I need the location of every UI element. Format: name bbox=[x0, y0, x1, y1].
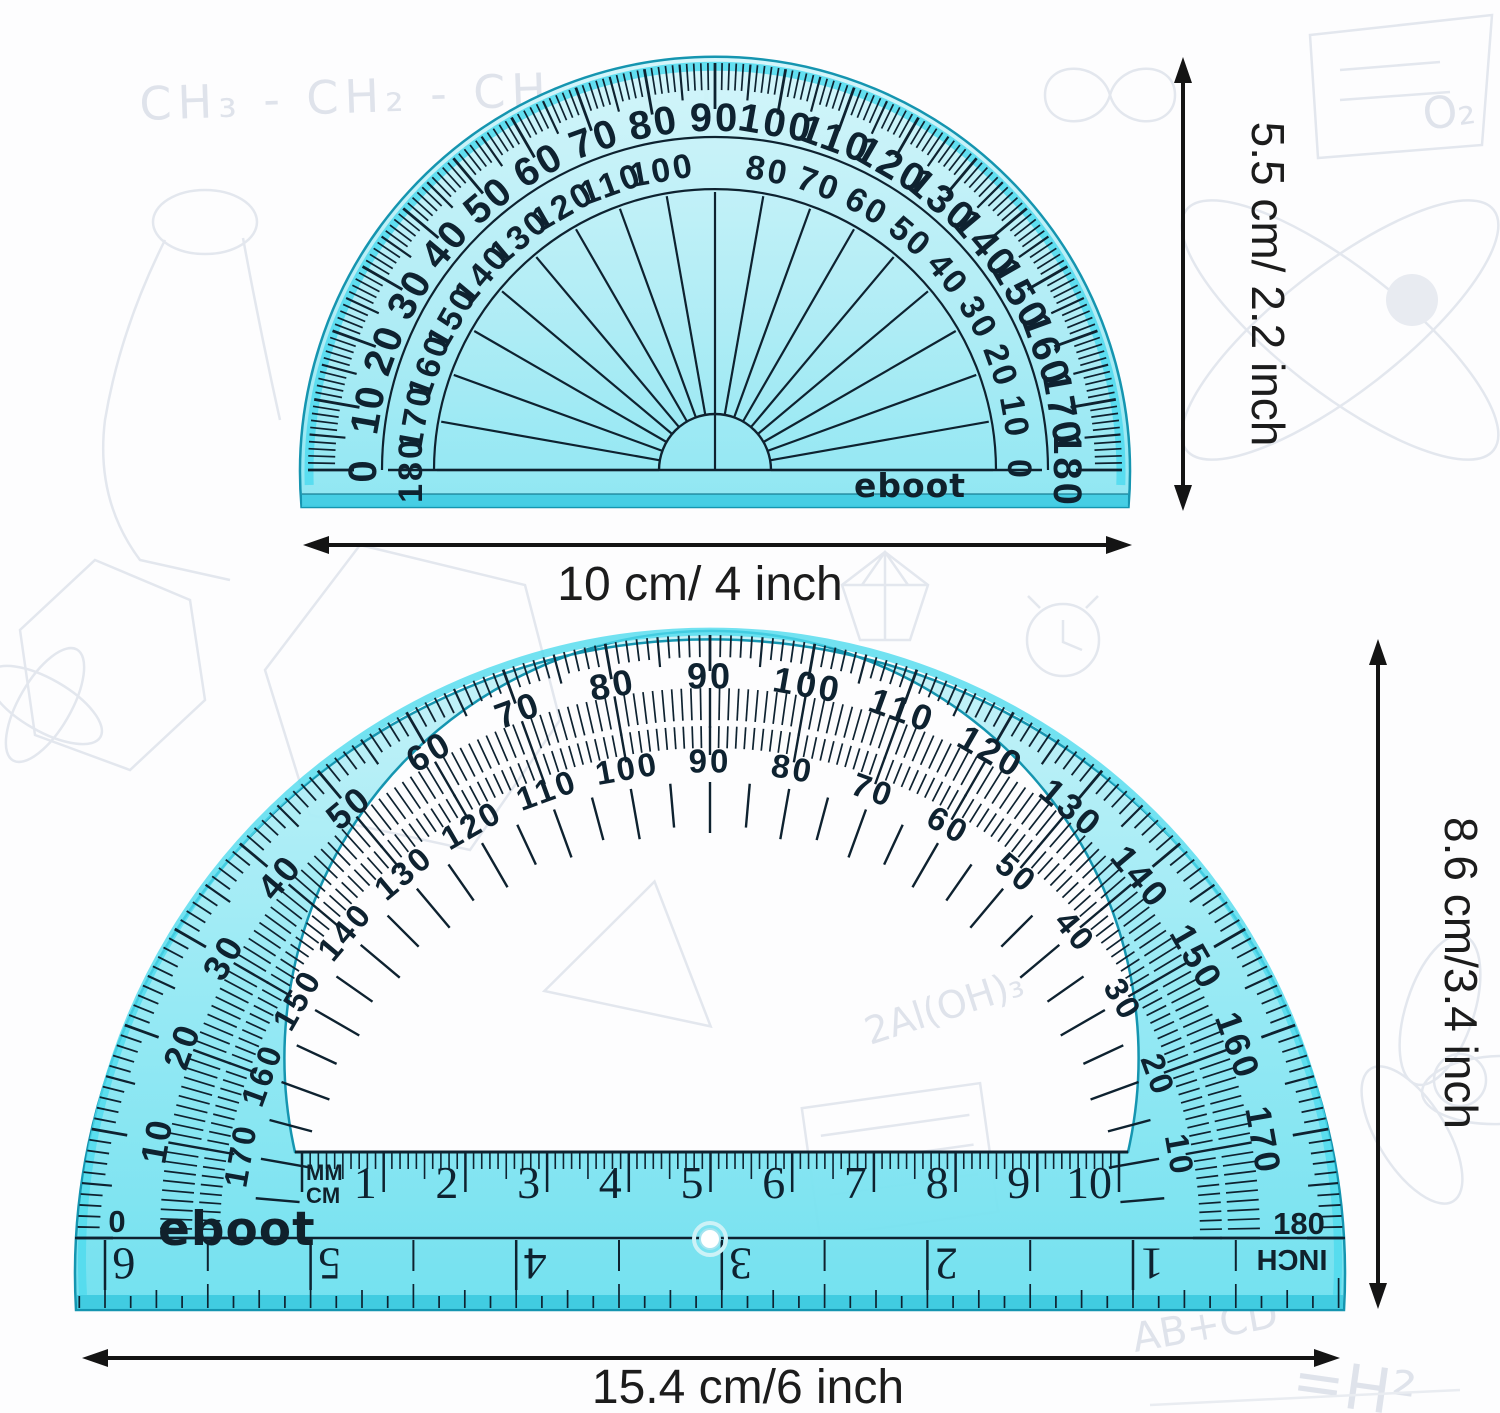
mid-band-a-tick bbox=[643, 692, 647, 724]
large-brand-logo: eboot bbox=[158, 1202, 316, 1257]
inch-number: 1 bbox=[1141, 1239, 1164, 1290]
mid-band-a-tick bbox=[1014, 793, 1033, 819]
small-inner-degree-label: 10 bbox=[992, 392, 1037, 442]
large-inner-degree-label: 10 bbox=[1158, 1131, 1202, 1179]
mid-band-b-tick bbox=[1106, 937, 1124, 950]
mid-band-a-tick bbox=[387, 793, 406, 819]
mid-band-b-tick bbox=[665, 728, 667, 750]
mid-band-b-tick bbox=[502, 770, 511, 790]
scene-svg: CH₃ - CH₂ - CH₂ - CH O₂ bbox=[0, 0, 1500, 1413]
cm-number: 10 bbox=[1066, 1157, 1112, 1208]
small-outer-degree-label: 80 bbox=[625, 97, 682, 149]
cm-number: 6 bbox=[762, 1157, 785, 1208]
outer-degree-tick bbox=[79, 1205, 101, 1206]
mid-band-b-tick bbox=[984, 814, 996, 832]
mid-band-a-tick bbox=[764, 691, 767, 723]
cm-number: 2 bbox=[435, 1157, 458, 1208]
mid-band-a-tick bbox=[681, 689, 683, 721]
inner-edge-tick bbox=[388, 916, 419, 947]
mid-band-a-tick bbox=[653, 691, 656, 723]
inner-edge-tick bbox=[417, 889, 450, 928]
doodle-chem2: 2Al(OH)₃ bbox=[859, 961, 1029, 1054]
inner-edge-tick bbox=[336, 976, 372, 1001]
mid-band-b-tick bbox=[829, 741, 834, 762]
mid-band-b-tick bbox=[1199, 1211, 1221, 1212]
large-inner-degree-label: 140 bbox=[310, 895, 380, 968]
inner-edge-tick bbox=[1020, 945, 1059, 978]
inner-edge-tick bbox=[1061, 1010, 1105, 1036]
mid-band-a-tick bbox=[486, 736, 499, 765]
mid-band-b-tick bbox=[820, 739, 825, 760]
small-outer-degree-label: 0 bbox=[341, 457, 385, 482]
mid-band-b-tick bbox=[586, 741, 591, 762]
inch-number: 3 bbox=[729, 1239, 752, 1290]
small-height-arrow bbox=[1174, 57, 1192, 511]
outer-degree-tick bbox=[78, 1216, 100, 1217]
inch-number: 6 bbox=[113, 1239, 136, 1290]
mid-band-a-tick bbox=[402, 782, 420, 809]
mid-band-b-tick bbox=[917, 774, 926, 794]
small-inner-degree-label: 80 bbox=[743, 148, 793, 193]
cm-number: 5 bbox=[681, 1157, 704, 1208]
mid-band-b-tick bbox=[348, 876, 364, 892]
small-protractor: 0180101702016030150401405013060120701108… bbox=[300, 57, 1130, 508]
mid-band-b-tick bbox=[683, 727, 684, 749]
mid-band-b-tick bbox=[494, 774, 503, 794]
mid-band-a-tick bbox=[568, 707, 576, 738]
inner-edge-tick bbox=[1001, 916, 1032, 947]
small-width-label: 10 cm/ 4 inch bbox=[557, 558, 842, 611]
inner-edge-tick bbox=[849, 810, 866, 858]
mid-band-a-tick bbox=[395, 787, 413, 813]
cm-number: 8 bbox=[926, 1157, 949, 1208]
mid-band-a-tick bbox=[921, 736, 934, 765]
degree-tick bbox=[1095, 456, 1122, 457]
large-outer-degree-label: 90 bbox=[687, 656, 733, 697]
mid-band-a-tick bbox=[1007, 787, 1025, 813]
inner-edge-tick bbox=[746, 784, 750, 828]
mid-band-a-tick bbox=[495, 732, 508, 761]
mid-band-b-tick bbox=[1200, 1220, 1222, 1221]
mid-band-b-tick bbox=[837, 743, 843, 764]
mid-band-b-tick bbox=[1101, 930, 1119, 943]
large-inner-degree-label: 50 bbox=[988, 845, 1045, 901]
clock-doodle bbox=[1027, 596, 1099, 676]
cm-number: 3 bbox=[517, 1157, 540, 1208]
mid-band-b-tick bbox=[1044, 864, 1059, 880]
inner-edge-tick bbox=[448, 864, 473, 900]
mid-band-b-tick bbox=[901, 767, 910, 787]
inner-edge-tick bbox=[297, 1045, 337, 1064]
mid-band-b-tick bbox=[1056, 876, 1072, 892]
cm-number: 7 bbox=[844, 1157, 867, 1208]
large-protractor: 1017020160301504014050130601207011080100… bbox=[75, 631, 1345, 1310]
doodle-eq-right: =H² bbox=[1288, 1343, 1420, 1413]
inner-edge-tick bbox=[554, 810, 571, 858]
mid-band-b-tick bbox=[991, 819, 1004, 837]
mid-band-b-tick bbox=[1068, 889, 1084, 904]
large-height-arrow bbox=[1369, 639, 1387, 1309]
inner-edge-tick bbox=[517, 825, 536, 865]
small-outer-degree-label: 10 bbox=[342, 380, 394, 437]
mid-band-b-tick bbox=[736, 727, 737, 749]
cm-number: 4 bbox=[599, 1157, 622, 1208]
atom-doodle bbox=[1148, 161, 1500, 499]
inner-edge-tick bbox=[282, 1082, 330, 1099]
inch-ruler-unit-label: INCH bbox=[1257, 1243, 1328, 1275]
inner-edge-tick bbox=[1083, 1045, 1123, 1064]
large-height-label: 8.6 cm/3.4 inch bbox=[1435, 817, 1487, 1129]
inner-edge-tick bbox=[1047, 976, 1083, 1001]
inner-edge-tick bbox=[1091, 1082, 1139, 1099]
large-inner-degree-label: 100 bbox=[592, 744, 662, 792]
small-height-label: 5.5 cm/ 2.2 inch bbox=[1242, 122, 1294, 447]
mid-band-b-tick bbox=[998, 824, 1011, 842]
doodle-o2: O₂ bbox=[1419, 83, 1478, 141]
inner-edge-tick bbox=[482, 843, 508, 887]
pinwheel-doodle bbox=[0, 637, 113, 774]
small-width-arrow bbox=[303, 536, 1132, 554]
inner-edge-tick bbox=[631, 789, 640, 839]
large-outer-degree-label: 80 bbox=[586, 660, 638, 708]
large-outer-degree-label: 70 bbox=[489, 683, 546, 737]
large-width-label: 15.4 cm/6 inch bbox=[592, 1361, 904, 1413]
triangle-doodle bbox=[544, 864, 737, 1027]
large-180-label: 180 bbox=[1273, 1206, 1325, 1241]
mid-band-b-tick bbox=[674, 727, 676, 749]
mid-band-b-tick bbox=[577, 743, 583, 764]
small-degree-scale: 0180101702016030150401405013060120701108… bbox=[308, 63, 1122, 508]
inner-edge-tick bbox=[884, 825, 903, 865]
mid-band-a-tick bbox=[746, 689, 748, 721]
inch-number: 5 bbox=[318, 1239, 341, 1290]
large-inner-degree-label: 40 bbox=[1048, 903, 1104, 960]
diamond-doodle bbox=[842, 552, 928, 640]
cm-ruler-mm-label: MM bbox=[306, 1160, 343, 1185]
cm-number: 9 bbox=[1007, 1157, 1030, 1208]
mid-band-a-tick bbox=[549, 712, 558, 743]
degree-tick bbox=[308, 456, 335, 457]
large-protractor-bevel bbox=[77, 1295, 1343, 1309]
large-inner-degree-label: 110 bbox=[511, 762, 582, 818]
mid-band-a-tick bbox=[1228, 1228, 1260, 1229]
cm-number: 1 bbox=[354, 1157, 377, 1208]
flask-doodle bbox=[103, 190, 280, 580]
inner-edge-tick bbox=[592, 798, 603, 841]
mid-band-a-tick bbox=[558, 709, 567, 740]
inch-number: 4 bbox=[524, 1239, 547, 1290]
mid-band-b-tick bbox=[753, 728, 755, 750]
mid-band-a-tick bbox=[737, 689, 739, 721]
mid-band-b-tick bbox=[909, 770, 918, 790]
outer-degree-tick bbox=[740, 636, 741, 658]
inner-edge-tick bbox=[946, 864, 971, 900]
large-inner-degree-label: 90 bbox=[689, 743, 732, 780]
outer-degree-tick bbox=[689, 635, 690, 657]
inner-edge-tick bbox=[670, 784, 674, 828]
mid-band-b-tick bbox=[761, 729, 763, 751]
mid-band-b-tick bbox=[925, 778, 935, 798]
mid-band-b-tick bbox=[845, 746, 851, 767]
mid-band-a-tick bbox=[844, 707, 852, 738]
mid-band-b-tick bbox=[656, 729, 658, 751]
mid-band-b-tick bbox=[977, 809, 989, 827]
outer-degree-tick bbox=[678, 636, 679, 658]
outer-degree-tick bbox=[730, 635, 731, 657]
large-outer-degree-label: 100 bbox=[770, 658, 845, 710]
mid-band-b-tick bbox=[770, 730, 773, 752]
product-dimension-diagram: CH₃ - CH₂ - CH₂ - CH O₂ bbox=[0, 0, 1500, 1413]
degree-tick bbox=[728, 63, 729, 90]
large-zero-label: 0 bbox=[108, 1204, 125, 1239]
large-outer-degree-label: 10 bbox=[132, 1114, 180, 1166]
large-inner-degree-label: 130 bbox=[367, 838, 440, 908]
inner-edge-tick bbox=[913, 843, 939, 887]
mid-band-a-tick bbox=[1228, 1219, 1260, 1220]
hexagon-doodle-1 bbox=[20, 560, 205, 770]
mid-band-b-tick bbox=[1062, 882, 1078, 897]
mid-band-b-tick bbox=[424, 814, 436, 832]
mid-band-b-tick bbox=[1050, 870, 1065, 886]
large-inner-degree-label: 70 bbox=[847, 765, 900, 814]
mid-band-b-tick bbox=[744, 727, 746, 749]
large-inner-degree-label: 60 bbox=[921, 798, 976, 851]
mid-band-a-tick bbox=[379, 799, 398, 825]
infinity-doodle bbox=[1045, 69, 1175, 122]
large-inner-degree-label: 80 bbox=[769, 746, 817, 790]
degree-tick bbox=[701, 63, 702, 90]
small-outer-degree-label: 90 bbox=[690, 96, 741, 140]
inner-edge-tick bbox=[817, 798, 828, 841]
mid-band-a-tick bbox=[577, 704, 585, 735]
inner-edge-tick bbox=[315, 1010, 359, 1036]
mid-band-a-tick bbox=[1000, 782, 1018, 809]
inner-edge-tick bbox=[780, 789, 789, 839]
inner-edge-tick bbox=[361, 945, 400, 978]
mid-band-a-tick bbox=[662, 690, 665, 722]
mid-band-a-tick bbox=[672, 689, 674, 721]
small-outer-degree-label: 180 bbox=[1045, 432, 1089, 508]
small-brand-logo: eboot bbox=[854, 466, 966, 505]
mid-band-a-tick bbox=[755, 690, 758, 722]
mid-band-b-tick bbox=[416, 819, 429, 837]
inch-number: 2 bbox=[935, 1239, 958, 1290]
mid-band-a-tick bbox=[853, 709, 862, 740]
inner-edge-tick bbox=[970, 889, 1003, 928]
